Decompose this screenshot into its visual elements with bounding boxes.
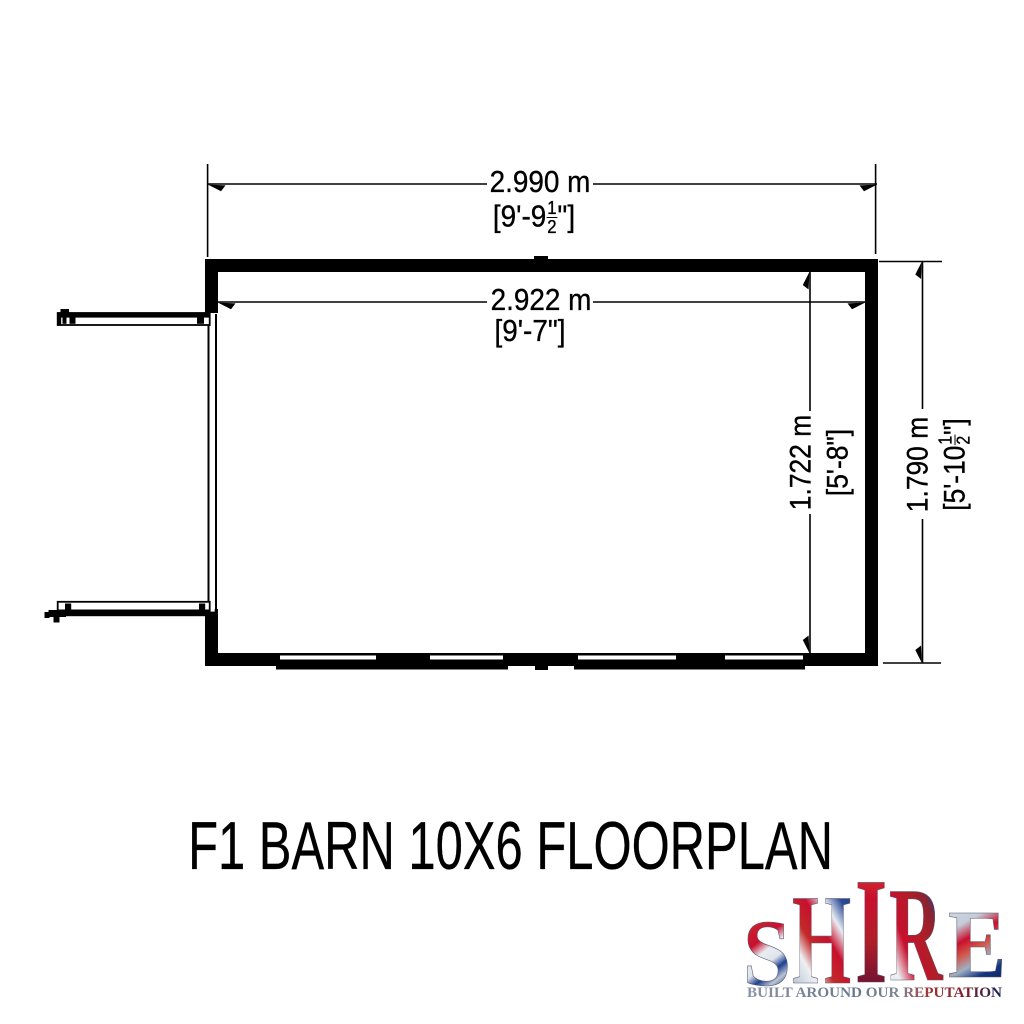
svg-text:E: E xyxy=(948,891,1006,998)
svg-text:BUILT AROUND OUR REPUTATION: BUILT AROUND OUR REPUTATION xyxy=(747,985,1003,1001)
